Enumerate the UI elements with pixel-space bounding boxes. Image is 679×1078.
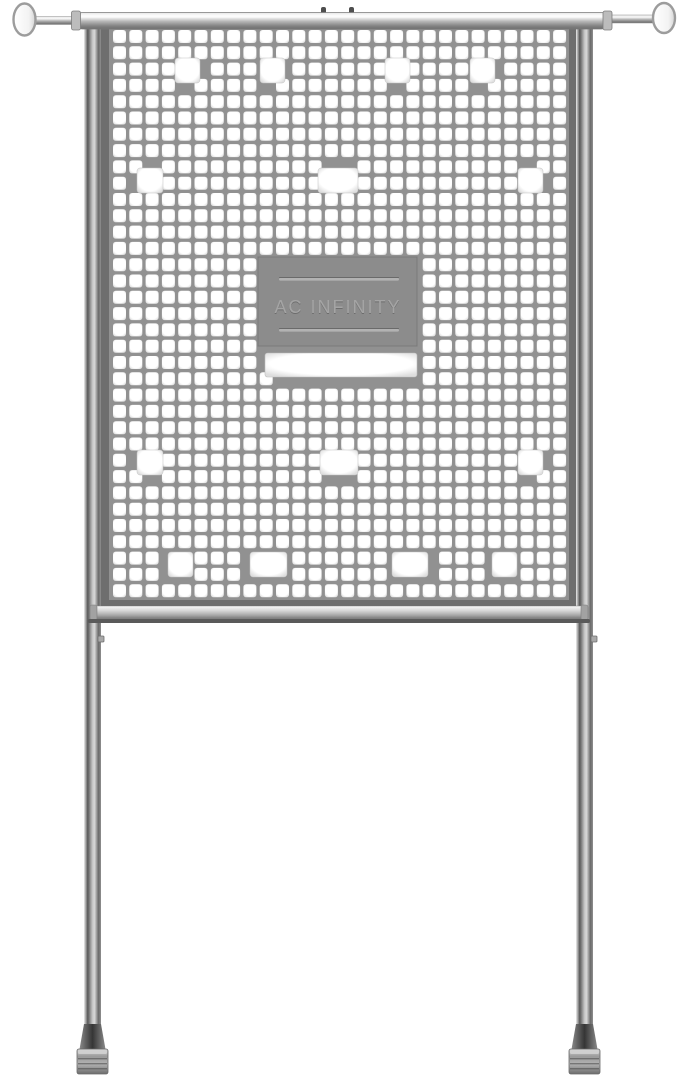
- hanging-slot-cutout: [265, 353, 417, 377]
- rail-shadow-line: [88, 619, 590, 623]
- finial-left: [14, 4, 36, 36]
- right-foot: [569, 1049, 600, 1074]
- left-pole-tube: [84, 16, 101, 1046]
- finial-right: [653, 3, 675, 33]
- left-pole-knob: [98, 636, 104, 642]
- left-foot-cone: [79, 1024, 106, 1052]
- rail-endcap-left: [90, 605, 97, 620]
- brand-text: AC INFINITY: [274, 297, 401, 317]
- product-photo-mesh-trellis: AC INFINITY AC INFINITY: [0, 0, 679, 1078]
- right-pole-knob: [591, 636, 597, 642]
- right-foot-cone: [571, 1024, 598, 1052]
- rod-collar-left: [72, 11, 81, 30]
- rod-tube-highlight: [80, 15, 604, 18]
- bottom-rail: [88, 605, 590, 623]
- brand-plate: AC INFINITY AC INFINITY: [258, 257, 417, 346]
- left-foot: [77, 1049, 108, 1074]
- rod-collar-right: [603, 11, 612, 30]
- rail-bar: [90, 606, 588, 619]
- right-pole-tube: [576, 16, 593, 1046]
- mesh-panel: AC INFINITY AC INFINITY: [95, 24, 583, 610]
- rail-endcap-right: [581, 605, 588, 620]
